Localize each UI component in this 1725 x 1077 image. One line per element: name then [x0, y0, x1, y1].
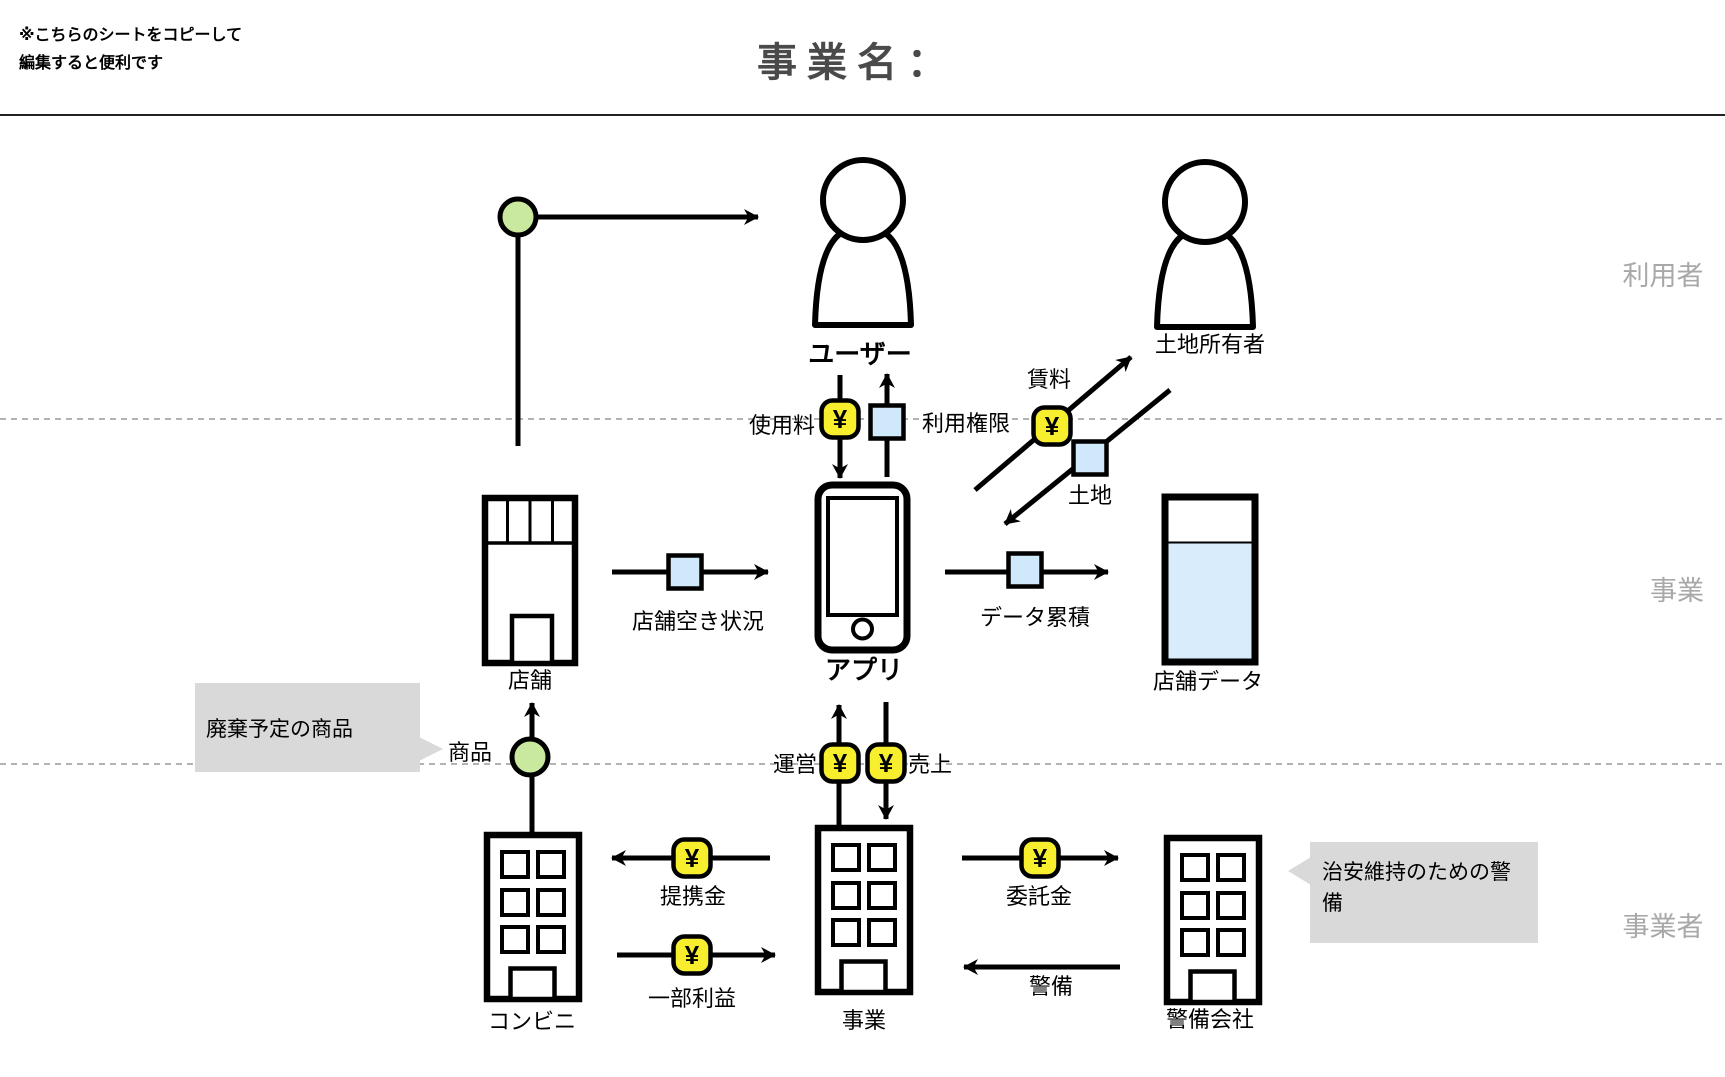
callout-security-reason[interactable]: 治安維持のための警備 [1310, 842, 1538, 943]
flow-label-partial-profit[interactable]: 一部利益 [648, 986, 736, 1011]
flow-label-security[interactable]: 警備 [1029, 974, 1073, 999]
flow-label-data-accumulation[interactable]: データ累積 [980, 605, 1090, 630]
flow-label-usage-fee[interactable]: 使用料 [749, 413, 815, 438]
data-tank-icon[interactable] [1165, 497, 1255, 662]
node-label-user[interactable]: ユーザー [808, 340, 911, 370]
node-label-store-data[interactable]: 店舗データ [1153, 669, 1263, 694]
node-label-landowner[interactable]: 土地所有者 [1155, 332, 1265, 357]
svg-text:¥: ¥ [833, 404, 848, 434]
person-icon[interactable] [1157, 162, 1253, 327]
item-square-icon[interactable] [669, 556, 702, 589]
section-label-business[interactable]: 事業 [1650, 576, 1704, 607]
yen-badge-icon[interactable]: ¥ [822, 401, 859, 438]
page-title[interactable]: 事業名： [757, 30, 957, 88]
flow-label-rent[interactable]: 賃料 [1027, 367, 1071, 392]
yen-badge-icon[interactable]: ¥ [674, 840, 711, 877]
flow-label-land[interactable]: 土地 [1068, 483, 1112, 508]
item-square-icon[interactable] [1074, 442, 1107, 475]
yen-badge-icon[interactable]: ¥ [674, 937, 711, 974]
yen-badge-icon[interactable]: ¥ [1022, 840, 1059, 877]
section-label-users[interactable]: 利用者 [1623, 261, 1704, 292]
svg-text:¥: ¥ [833, 748, 848, 778]
flow-label-usage-rights[interactable]: 利用権限 [922, 411, 1010, 436]
storefront-icon[interactable] [485, 498, 575, 663]
flow-label-sales[interactable]: 売上 [908, 752, 952, 777]
office-building-icon[interactable] [1167, 838, 1259, 1002]
svg-text:¥: ¥ [1033, 843, 1048, 873]
yen-badge-icon[interactable]: ¥ [868, 745, 905, 782]
goods-circle-icon[interactable] [512, 739, 548, 775]
node-label-security-company[interactable]: 警備会社 [1166, 1007, 1254, 1032]
flow-label-store-vacancy[interactable]: 店舗空き状況 [632, 609, 764, 634]
person-icon[interactable] [815, 160, 911, 325]
node-label-business[interactable]: 事業 [842, 1008, 886, 1033]
node-label-convenience-store[interactable]: コンビニ [488, 1009, 576, 1034]
flow-label-goods[interactable]: 商品 [448, 740, 492, 765]
svg-text:¥: ¥ [1045, 411, 1060, 441]
yen-badge-icon[interactable]: ¥ [1034, 408, 1071, 445]
header-rule [0, 114, 1725, 116]
svg-text:¥: ¥ [685, 940, 700, 970]
office-building-icon[interactable] [818, 828, 910, 992]
flow-label-operation[interactable]: 運営 [773, 752, 817, 777]
callout-pointer [419, 737, 443, 761]
node-label-store[interactable]: 店舗 [508, 668, 552, 693]
svg-text:¥: ¥ [879, 748, 894, 778]
sheet-note-line2: 編集すると便利です [19, 50, 242, 78]
flow-label-partnership-fee[interactable]: 提携金 [660, 884, 726, 909]
sheet-note-line1: ※こちらのシートをコピーして [19, 22, 242, 50]
callout-pointer [1288, 857, 1311, 885]
section-label-operator[interactable]: 事業者 [1623, 912, 1704, 943]
svg-text:¥: ¥ [685, 843, 700, 873]
node-label-app[interactable]: アプリ [825, 656, 903, 686]
sheet-note[interactable]: ※こちらのシートをコピーして 編集すると便利です [19, 22, 242, 78]
yen-badge-icon[interactable]: ¥ [822, 745, 859, 782]
flow-label-commission-fee[interactable]: 委託金 [1006, 884, 1072, 909]
item-square-icon[interactable] [871, 406, 904, 439]
smartphone-icon[interactable] [818, 485, 907, 650]
goods-circle-icon[interactable] [500, 199, 536, 235]
office-building-icon[interactable] [487, 835, 579, 999]
item-square-icon[interactable] [1009, 554, 1042, 587]
callout-disposal-products[interactable]: 廃棄予定の商品 [195, 683, 420, 772]
business-model-sheet: ¥ ¥ ¥ ¥ ¥ ¥ ¥ ※こちらのシートをコピーし [0, 0, 1725, 1077]
